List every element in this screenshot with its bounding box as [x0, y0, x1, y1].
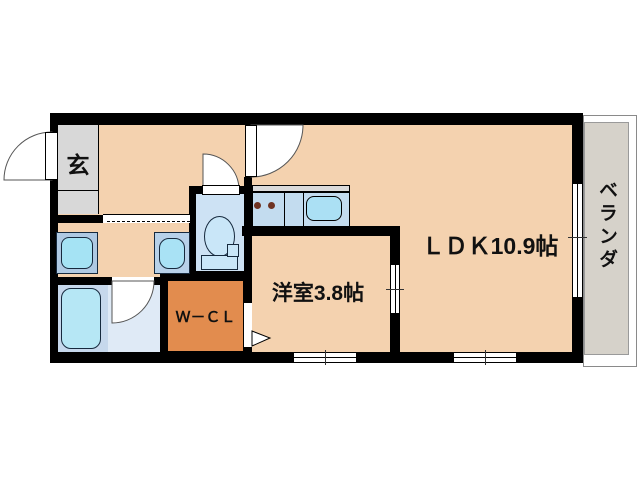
sliding-door-tick [386, 289, 404, 290]
wall-toilet-top-b [239, 186, 252, 194]
washbasin-bowl [159, 238, 185, 269]
wall-right-upper [572, 113, 583, 183]
wall-left-upper [50, 113, 58, 132]
veranda-floor: ベランダ [584, 122, 629, 355]
window-tick-1 [325, 350, 326, 365]
stove-burner-1 [254, 202, 261, 209]
washing-machine-drum [61, 237, 93, 269]
entrance-door-leaf [45, 132, 58, 180]
veranda-label: ベランダ [593, 180, 620, 298]
toilet-door-leaf [202, 185, 240, 195]
wall-bottom-1 [50, 352, 293, 363]
wcl-door-gap [244, 303, 252, 347]
ldk-door-leaf [245, 125, 257, 177]
counter-divider-2 [303, 193, 304, 226]
stove-burner-2 [268, 202, 275, 209]
wall-bath-wcl [160, 277, 167, 352]
toilet-tank-knob [227, 244, 239, 257]
wall-westernroom-top [242, 226, 400, 236]
wall-wcl-stub [244, 347, 252, 363]
counter-divider-1 [284, 193, 285, 226]
wall-westernroom-right-b [390, 314, 400, 352]
sliding-door-dash [107, 221, 190, 222]
wcl-label: Ｗ－ＣＬ [167, 306, 244, 327]
wall-top [50, 113, 583, 125]
entrance-step-line [58, 190, 98, 191]
bathroom-door-gap [112, 277, 154, 285]
entrance-label: 玄 [58, 146, 98, 180]
toilet-base [201, 255, 238, 270]
wall-hall-ldk [244, 177, 252, 303]
wall-westernroom-right-a [390, 236, 400, 264]
western-room-label: 洋室3.8帖 [253, 277, 383, 307]
floorplan-canvas: ベランダ [0, 0, 640, 480]
window-tick-2 [485, 350, 486, 365]
wall-washroom-top [50, 215, 103, 223]
wall-wash-bath-a [50, 277, 112, 285]
window-veranda [572, 183, 583, 298]
ldk-label: ＬＤＫ10.9帖 [408, 227, 572, 261]
kitchen-sink [306, 196, 342, 221]
wall-bottom-2 [357, 352, 453, 363]
window-midline [577, 184, 578, 297]
wall-toilet-left [189, 186, 196, 280]
kitchen-backsplash [252, 185, 350, 192]
bathroom-wash-area [108, 285, 160, 352]
wall-right-lower [572, 298, 583, 363]
sliding-door-washroom [103, 214, 190, 223]
bathtub [61, 288, 101, 349]
wall-toilet-top-a [189, 186, 203, 194]
